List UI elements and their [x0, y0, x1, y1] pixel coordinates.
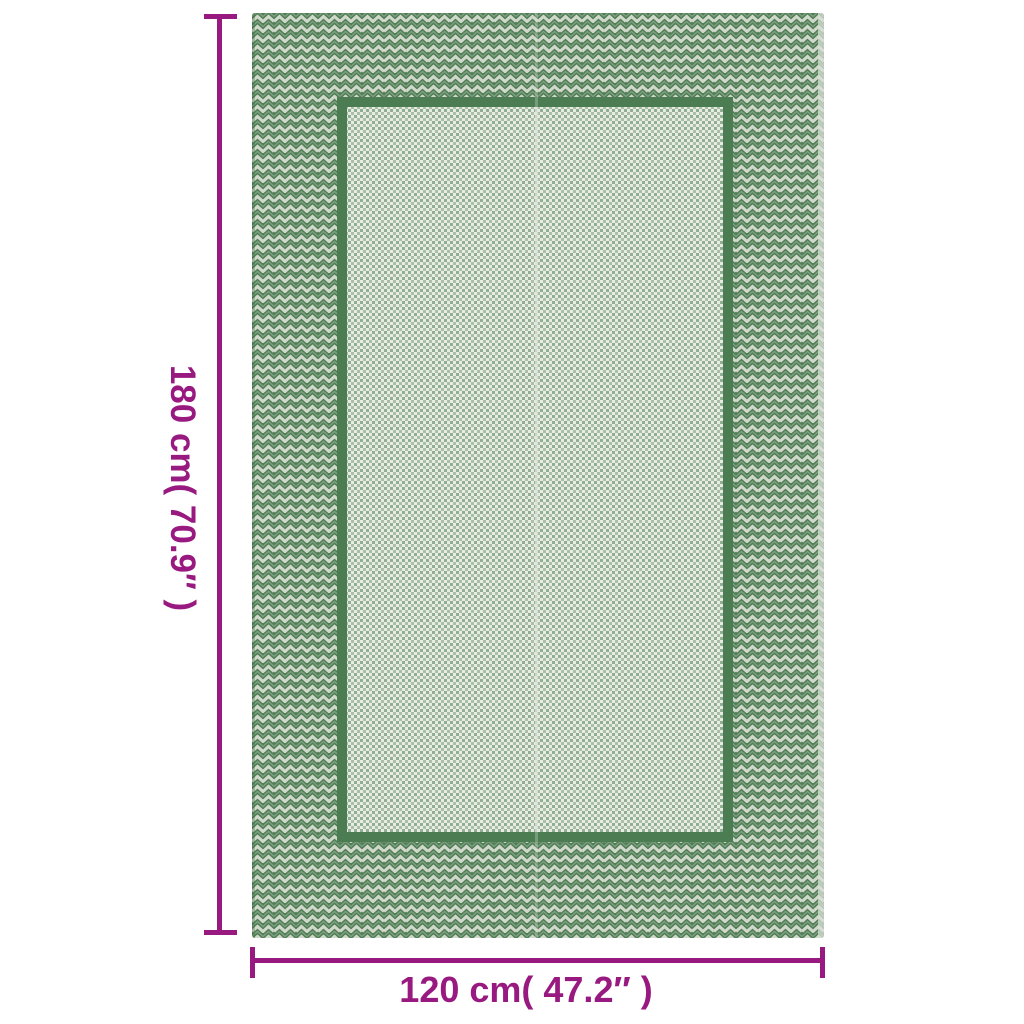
width-dimension-label: 120 cm( 47.2″ ) [399, 969, 652, 1011]
height-dimension-label: 180 cm( 70.9″ ) [162, 365, 202, 611]
rug-center-seam-field [535, 107, 538, 832]
width-dimension-cap-right [820, 947, 825, 978]
height-dimension-cap-bottom [204, 930, 237, 935]
height-dimension-cap-top [204, 14, 237, 19]
rug-texture-svg [252, 13, 824, 938]
height-dimension-line [217, 14, 222, 935]
rug-left-edge-shadow [252, 13, 255, 938]
width-dimension-cap-left [250, 947, 255, 978]
rug-photo [252, 13, 824, 938]
rug-selvage-edge [818, 13, 824, 938]
product-dimension-image: 180 cm( 70.9″ ) 120 cm( 47.2″ ) [0, 0, 1024, 1024]
width-dimension-line [252, 958, 824, 963]
